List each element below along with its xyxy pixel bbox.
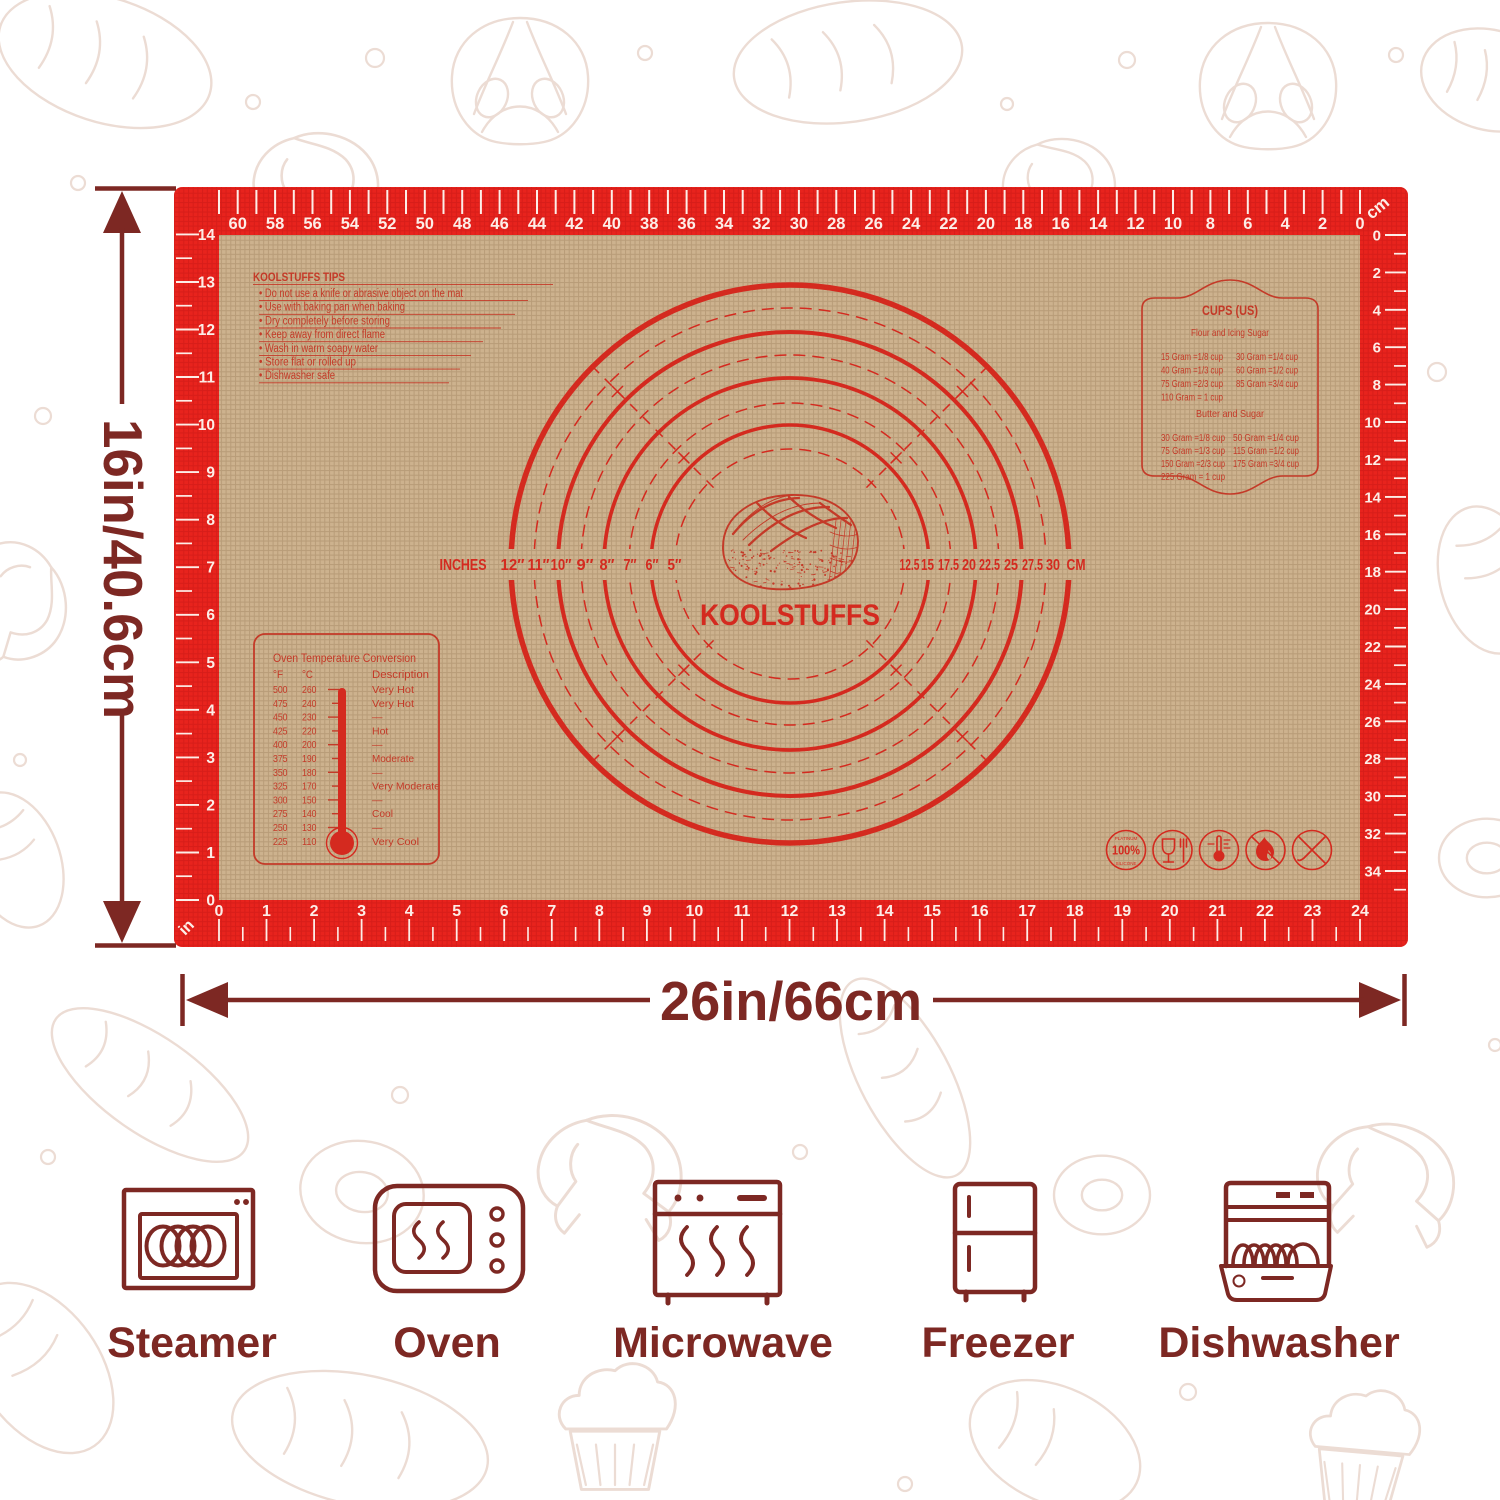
svg-text:260: 260 bbox=[302, 684, 317, 696]
svg-text:6: 6 bbox=[500, 903, 509, 920]
svg-text:3: 3 bbox=[357, 903, 366, 920]
svg-text:21: 21 bbox=[1209, 903, 1227, 920]
svg-text:10: 10 bbox=[1364, 415, 1381, 432]
svg-text:20: 20 bbox=[1364, 602, 1381, 619]
svg-text:56: 56 bbox=[303, 215, 321, 233]
svg-text:2: 2 bbox=[1318, 215, 1327, 233]
svg-text:• Dishwasher safe: • Dishwasher safe bbox=[259, 370, 335, 382]
svg-text:INCHES: INCHES bbox=[440, 557, 487, 574]
svg-text:KOOLSTUFFS: KOOLSTUFFS bbox=[700, 599, 880, 632]
svg-text:22: 22 bbox=[939, 215, 957, 233]
svg-text:28: 28 bbox=[1364, 751, 1381, 768]
svg-text:—: — bbox=[372, 794, 383, 806]
svg-text:475: 475 bbox=[273, 698, 288, 710]
svg-text:375: 375 bbox=[273, 753, 288, 765]
svg-text:110: 110 bbox=[302, 836, 317, 848]
svg-text:• Store flat or rolled up: • Store flat or rolled up bbox=[259, 357, 356, 369]
svg-text:25: 25 bbox=[1004, 557, 1018, 574]
svg-text:18: 18 bbox=[1364, 564, 1381, 581]
svg-text:4: 4 bbox=[1281, 215, 1291, 233]
svg-text:38: 38 bbox=[640, 215, 658, 233]
svg-text:30 Gram =1/8 cup: 30 Gram =1/8 cup bbox=[1161, 433, 1225, 444]
svg-text:14: 14 bbox=[876, 903, 894, 920]
svg-text:14: 14 bbox=[198, 227, 216, 244]
svg-text:Oven Temperature Conversion: Oven Temperature Conversion bbox=[273, 653, 416, 665]
svg-text:3: 3 bbox=[206, 750, 215, 767]
svg-text:450: 450 bbox=[273, 712, 288, 724]
svg-text:40 Gram =1/3 cup: 40 Gram =1/3 cup bbox=[1161, 366, 1223, 377]
svg-text:110 Gram = 1 cup: 110 Gram = 1 cup bbox=[1161, 393, 1223, 404]
svg-text:6: 6 bbox=[206, 607, 215, 624]
svg-text:20: 20 bbox=[1161, 903, 1179, 920]
svg-text:150 Gram =2/3 cup: 150 Gram =2/3 cup bbox=[1161, 459, 1225, 470]
svg-text:• Dry completely before storin: • Dry completely before storing bbox=[259, 315, 390, 327]
svg-text:54: 54 bbox=[341, 215, 360, 233]
svg-text:26: 26 bbox=[865, 215, 883, 233]
svg-text:°F: °F bbox=[273, 669, 283, 681]
svg-text:24: 24 bbox=[1351, 903, 1369, 920]
svg-text:58: 58 bbox=[266, 215, 284, 233]
svg-text:15: 15 bbox=[923, 903, 941, 920]
svg-text:9: 9 bbox=[206, 465, 215, 482]
svg-text:17: 17 bbox=[1018, 903, 1036, 920]
svg-text:130: 130 bbox=[302, 822, 317, 834]
svg-text:325: 325 bbox=[273, 781, 288, 793]
svg-text:140: 140 bbox=[302, 808, 317, 820]
svg-text:115 Gram =1/2 cup: 115 Gram =1/2 cup bbox=[1233, 446, 1299, 457]
svg-text:12: 12 bbox=[1364, 452, 1381, 469]
svg-text:5: 5 bbox=[452, 903, 461, 920]
svg-text:Dishwasher: Dishwasher bbox=[1158, 1319, 1400, 1367]
svg-text:6: 6 bbox=[1243, 215, 1252, 233]
svg-text:Moderate: Moderate bbox=[372, 753, 414, 765]
svg-text:26: 26 bbox=[1364, 714, 1381, 731]
svg-text:Microwave: Microwave bbox=[613, 1319, 833, 1367]
svg-text:425: 425 bbox=[273, 725, 288, 737]
svg-text:Oven: Oven bbox=[393, 1319, 501, 1367]
svg-text:10: 10 bbox=[686, 903, 704, 920]
svg-text:10: 10 bbox=[1164, 215, 1182, 233]
svg-text:—: — bbox=[372, 712, 383, 724]
svg-text:0: 0 bbox=[1373, 228, 1381, 245]
svg-text:32: 32 bbox=[1364, 826, 1381, 843]
svg-text:240: 240 bbox=[302, 698, 317, 710]
svg-text:Very Cool: Very Cool bbox=[372, 836, 419, 848]
svg-text:1: 1 bbox=[262, 903, 271, 920]
svg-text:9″: 9″ bbox=[577, 557, 594, 574]
svg-text:85 Gram =3/4 cup: 85 Gram =3/4 cup bbox=[1236, 379, 1298, 390]
svg-text:0: 0 bbox=[215, 903, 224, 920]
svg-text:18: 18 bbox=[1066, 903, 1084, 920]
svg-text:42: 42 bbox=[565, 215, 583, 233]
svg-text:Butter and Sugar: Butter and Sugar bbox=[1196, 408, 1264, 420]
svg-text:16: 16 bbox=[1052, 215, 1070, 233]
svg-text:52: 52 bbox=[378, 215, 396, 233]
svg-text:30 Gram =1/4 cup: 30 Gram =1/4 cup bbox=[1236, 352, 1298, 363]
svg-text:24: 24 bbox=[902, 215, 921, 233]
svg-text:15 Gram =1/8 cup: 15 Gram =1/8 cup bbox=[1161, 352, 1223, 363]
svg-text:30: 30 bbox=[1364, 789, 1381, 806]
svg-text:Freezer: Freezer bbox=[922, 1319, 1075, 1367]
svg-text:11: 11 bbox=[199, 370, 216, 387]
svg-text:KOOLSTUFFS TIPS: KOOLSTUFFS TIPS bbox=[253, 272, 345, 284]
svg-text:CUPS (US): CUPS (US) bbox=[1202, 302, 1258, 318]
svg-text:275: 275 bbox=[273, 808, 288, 820]
svg-text:5: 5 bbox=[206, 655, 215, 672]
svg-text:40: 40 bbox=[603, 215, 621, 233]
svg-text:0: 0 bbox=[1355, 215, 1364, 233]
svg-text:12″: 12″ bbox=[501, 557, 525, 574]
svg-text:350: 350 bbox=[273, 767, 288, 779]
svg-text:8: 8 bbox=[1373, 377, 1381, 394]
svg-text:22: 22 bbox=[1364, 639, 1381, 656]
svg-text:300: 300 bbox=[273, 794, 288, 806]
svg-text:15: 15 bbox=[921, 557, 934, 574]
svg-text:• Keep away from direct flame: • Keep away from direct flame bbox=[259, 329, 385, 341]
svg-text:20: 20 bbox=[962, 557, 976, 574]
svg-text:13: 13 bbox=[198, 275, 216, 292]
svg-text:8: 8 bbox=[206, 512, 215, 529]
svg-text:225 Gram = 1 cup: 225 Gram = 1 cup bbox=[1161, 472, 1225, 483]
svg-text:180: 180 bbox=[302, 767, 317, 779]
svg-text:26in/66cm: 26in/66cm bbox=[660, 970, 922, 1032]
svg-text:8: 8 bbox=[595, 903, 604, 920]
svg-text:CM: CM bbox=[1067, 557, 1086, 574]
svg-text:8″: 8″ bbox=[600, 557, 615, 574]
svg-text:36: 36 bbox=[677, 215, 695, 233]
svg-text:20: 20 bbox=[977, 215, 995, 233]
svg-text:48: 48 bbox=[453, 215, 471, 233]
svg-text:—: — bbox=[372, 822, 383, 834]
svg-text:28: 28 bbox=[827, 215, 845, 233]
svg-text:• Do not use a knife or abrasi: • Do not use a knife or abrasive object … bbox=[259, 288, 464, 300]
svg-text:250: 250 bbox=[273, 822, 288, 834]
svg-text:10: 10 bbox=[198, 417, 215, 434]
svg-text:16: 16 bbox=[1364, 527, 1381, 544]
svg-text:Description: Description bbox=[372, 669, 429, 681]
svg-text:12: 12 bbox=[1126, 215, 1144, 233]
svg-text:11″: 11″ bbox=[528, 557, 550, 574]
svg-text:50 Gram =1/4 cup: 50 Gram =1/4 cup bbox=[1233, 433, 1299, 444]
svg-text:200: 200 bbox=[302, 739, 317, 751]
svg-text:Steamer: Steamer bbox=[107, 1319, 277, 1367]
svg-text:4: 4 bbox=[206, 702, 215, 719]
svg-text:11: 11 bbox=[734, 903, 751, 920]
svg-text:400: 400 bbox=[273, 739, 288, 751]
svg-text:Hot: Hot bbox=[372, 725, 388, 737]
svg-text:175 Gram =3/4 cup: 175 Gram =3/4 cup bbox=[1233, 459, 1299, 470]
svg-text:18: 18 bbox=[1014, 215, 1032, 233]
svg-text:Flour and Icing Sugar: Flour and Icing Sugar bbox=[1191, 327, 1269, 339]
svg-text:12.5: 12.5 bbox=[900, 557, 920, 574]
svg-text:12: 12 bbox=[198, 322, 215, 339]
svg-text:230: 230 bbox=[302, 712, 317, 724]
svg-text:22: 22 bbox=[1256, 903, 1274, 920]
svg-text:14: 14 bbox=[1089, 215, 1108, 233]
svg-text:10″: 10″ bbox=[551, 557, 572, 574]
svg-text:17.5: 17.5 bbox=[938, 557, 959, 574]
svg-text:24: 24 bbox=[1364, 676, 1381, 693]
svg-text:30: 30 bbox=[1046, 557, 1060, 574]
svg-text:170: 170 bbox=[302, 781, 317, 793]
svg-text:2: 2 bbox=[206, 797, 215, 814]
svg-text:75 Gram =1/3 cup: 75 Gram =1/3 cup bbox=[1161, 446, 1225, 457]
svg-text:190: 190 bbox=[302, 753, 317, 765]
svg-text:SILICONE: SILICONE bbox=[1115, 861, 1136, 866]
svg-text:PLATINUM: PLATINUM bbox=[1115, 836, 1138, 841]
svg-text:100%: 100% bbox=[1112, 843, 1140, 858]
svg-text:150: 150 bbox=[302, 794, 317, 806]
svg-text:7: 7 bbox=[547, 903, 556, 920]
svg-text:6″: 6″ bbox=[646, 557, 659, 574]
svg-text:75 Gram =2/3 cup: 75 Gram =2/3 cup bbox=[1161, 379, 1223, 390]
svg-text:—: — bbox=[372, 767, 383, 779]
svg-text:23: 23 bbox=[1304, 903, 1322, 920]
svg-text:4: 4 bbox=[405, 903, 414, 920]
svg-text:50: 50 bbox=[416, 215, 434, 233]
svg-text:34: 34 bbox=[1364, 864, 1381, 881]
svg-text:—: — bbox=[372, 739, 383, 751]
svg-text:2: 2 bbox=[310, 903, 319, 920]
svg-text:27.5: 27.5 bbox=[1022, 557, 1043, 574]
svg-text:7: 7 bbox=[206, 560, 215, 577]
svg-text:Very Hot: Very Hot bbox=[372, 684, 414, 696]
svg-text:34: 34 bbox=[715, 215, 734, 233]
svg-text:225: 225 bbox=[273, 836, 288, 848]
svg-text:• Use with baking pan when bak: • Use with baking pan when baking bbox=[259, 302, 405, 314]
svg-text:46: 46 bbox=[490, 215, 508, 233]
svg-text:Cool: Cool bbox=[372, 808, 393, 820]
svg-text:5″: 5″ bbox=[668, 557, 682, 574]
svg-text:8: 8 bbox=[1206, 215, 1215, 233]
svg-text:22.5: 22.5 bbox=[979, 557, 1000, 574]
svg-text:4: 4 bbox=[1373, 302, 1382, 319]
svg-text:°C: °C bbox=[302, 669, 313, 681]
svg-text:Very Moderate: Very Moderate bbox=[372, 781, 440, 793]
svg-text:6: 6 bbox=[1373, 340, 1381, 357]
svg-text:14: 14 bbox=[1364, 489, 1381, 506]
svg-text:7″: 7″ bbox=[624, 557, 637, 574]
svg-text:Very Hot: Very Hot bbox=[372, 698, 414, 710]
svg-text:500: 500 bbox=[273, 684, 288, 696]
svg-text:• Wash in warm soapy water: • Wash in warm soapy water bbox=[259, 343, 378, 355]
svg-text:13: 13 bbox=[828, 903, 846, 920]
svg-text:30: 30 bbox=[790, 215, 808, 233]
svg-text:32: 32 bbox=[752, 215, 770, 233]
svg-text:2: 2 bbox=[1373, 265, 1381, 282]
svg-text:60: 60 bbox=[229, 215, 247, 233]
svg-text:220: 220 bbox=[302, 725, 317, 737]
svg-text:60 Gram =1/2 cup: 60 Gram =1/2 cup bbox=[1236, 366, 1298, 377]
svg-text:12: 12 bbox=[781, 903, 799, 920]
svg-text:9: 9 bbox=[642, 903, 651, 920]
svg-text:19: 19 bbox=[1113, 903, 1131, 920]
svg-text:16: 16 bbox=[971, 903, 989, 920]
svg-text:16in/40.6cm: 16in/40.6cm bbox=[92, 419, 154, 719]
svg-text:44: 44 bbox=[528, 215, 547, 233]
svg-text:1: 1 bbox=[206, 845, 215, 862]
